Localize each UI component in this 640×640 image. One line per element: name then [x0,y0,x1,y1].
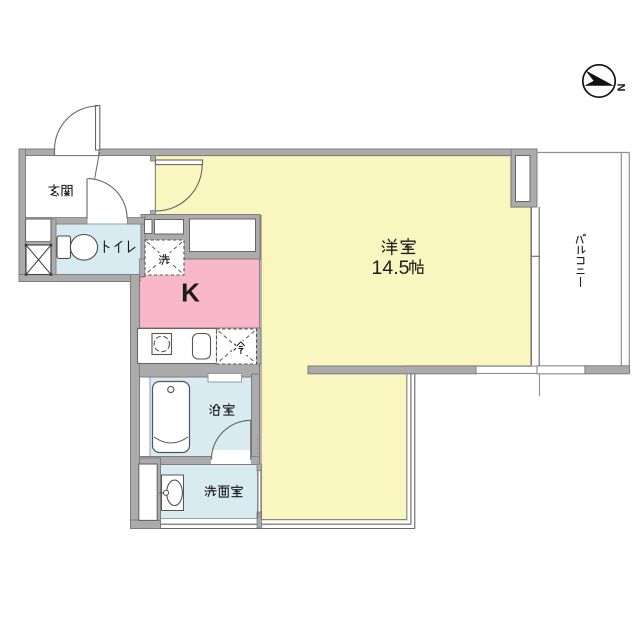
svg-text:K: K [181,278,200,308]
svg-text:N: N [615,84,627,92]
svg-text:14.5: 14.5 [372,257,410,279]
